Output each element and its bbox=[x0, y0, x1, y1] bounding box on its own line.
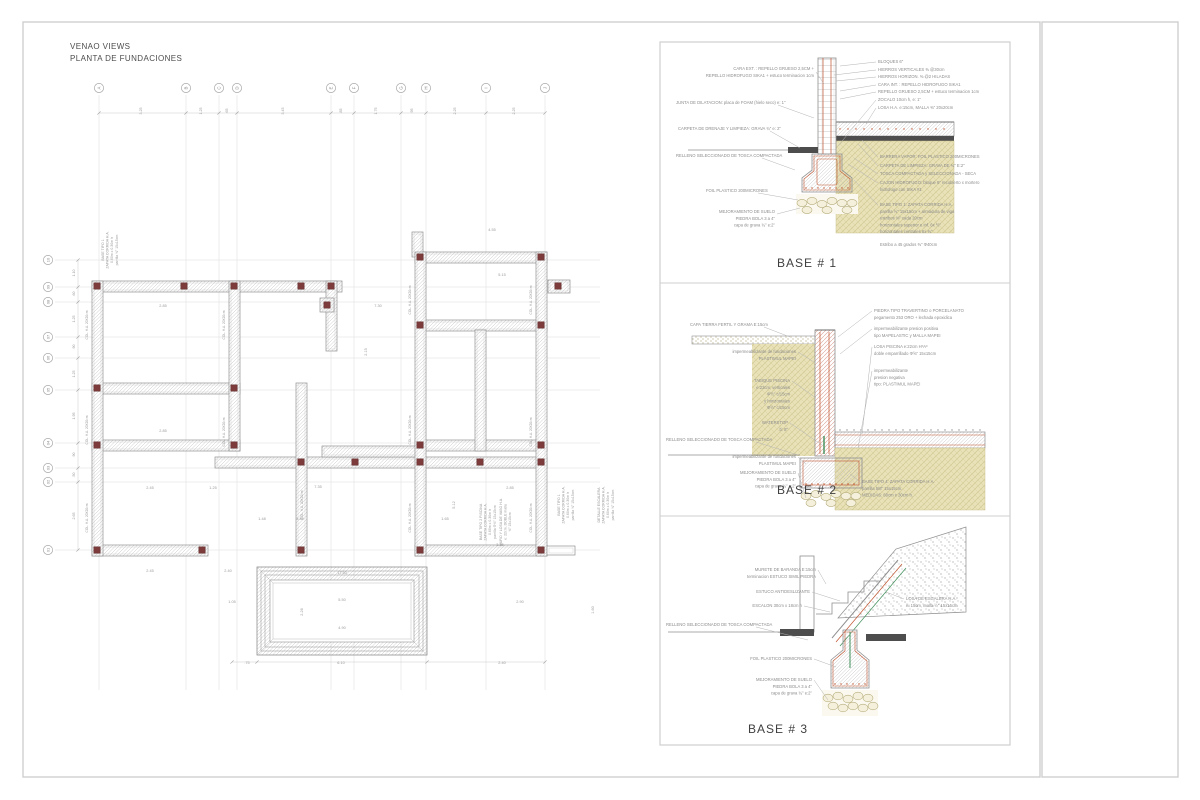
sheet-title-line1: VENAO VIEWS bbox=[70, 41, 182, 53]
axis-label: 02 bbox=[46, 479, 51, 484]
rebar-dot bbox=[916, 429, 917, 430]
plan-annotation: ZAPATA CORRIDA H.A. bbox=[602, 486, 606, 523]
stone bbox=[838, 704, 848, 712]
detail-label: TOSCA COMPACTADA y SELECCIONADA - SECA bbox=[880, 171, 976, 176]
stone bbox=[833, 692, 843, 700]
rebar-dot bbox=[871, 128, 872, 129]
dim-label: 2.15 bbox=[364, 348, 368, 355]
detail-label: ZOCALO 10cm h, e: 1" bbox=[878, 97, 921, 102]
dim-label: 2.85 bbox=[159, 429, 166, 433]
column-label: COL. H.A. 20X20cm bbox=[222, 417, 226, 446]
rebar-dot bbox=[923, 429, 924, 430]
stone bbox=[868, 702, 878, 710]
stone bbox=[837, 199, 847, 206]
stone bbox=[858, 704, 868, 712]
detail-label: LOSA H.A. e:15cm, MALLA ⅜" 20x20cm bbox=[878, 105, 954, 110]
plan-annotation: BASE TIPO 1 bbox=[557, 494, 561, 515]
detail-label: ESCALON 30cm x 18cm h bbox=[752, 603, 802, 608]
rebar-dot bbox=[858, 683, 859, 684]
axis-label: 08 bbox=[46, 299, 51, 304]
rebar-dot bbox=[834, 683, 835, 684]
strip-footing bbox=[92, 440, 240, 451]
plan-annotation: e: 22cm, DOBLE malla bbox=[504, 504, 508, 540]
strip-footing bbox=[92, 545, 208, 556]
detail-title: BASE # 1 bbox=[777, 256, 837, 270]
strip-footing bbox=[415, 545, 547, 556]
drawing-sheet: 3.251.25.653.45.851.75.952.252.251.10.60… bbox=[0, 0, 1200, 800]
dim-label: .65 bbox=[225, 109, 229, 114]
strip-footing bbox=[92, 281, 103, 556]
rebar-dot bbox=[853, 483, 854, 484]
column-label: COL. H.A. 20X20cm bbox=[222, 310, 226, 339]
axis-label: 04 bbox=[46, 440, 51, 445]
rebar-dot bbox=[811, 187, 812, 188]
rebar-dot bbox=[839, 128, 840, 129]
dim-label: 2.26 bbox=[300, 608, 304, 615]
detail-label: FOIL PLASTICO 200MICRONES bbox=[706, 188, 768, 193]
column-marker bbox=[417, 254, 423, 260]
stone bbox=[848, 702, 858, 710]
vapor-barrier bbox=[836, 136, 954, 141]
rebar-dot bbox=[863, 128, 864, 129]
column-marker bbox=[298, 459, 304, 465]
plan-annotation: ZAPATA CORRIDA H.A. bbox=[562, 486, 566, 523]
dim-label: .90 bbox=[72, 345, 76, 350]
stone bbox=[802, 206, 812, 213]
rebar-dot bbox=[881, 429, 882, 430]
rebar-dot bbox=[823, 187, 824, 188]
column-label: COL. H.A. 20X20cm bbox=[408, 415, 412, 444]
stone bbox=[847, 199, 857, 206]
rebar-dot bbox=[895, 128, 896, 129]
axis-label: 03 bbox=[46, 465, 51, 470]
detail-label: Estribo a 45 grados ⅜" Φ40cm bbox=[880, 242, 938, 247]
detail-label: PIEDRA TIPO TRAVERTINO o PORCELANATOpega… bbox=[874, 308, 965, 320]
stone bbox=[828, 702, 838, 710]
rebar-dot bbox=[855, 128, 856, 129]
detail-title: BASE # 3 bbox=[748, 722, 808, 736]
rebar-dot bbox=[867, 429, 868, 430]
detail-label: LOSA PISCINA e:22cm HºAºdoble emparrilla… bbox=[874, 344, 937, 356]
rebar-dot bbox=[909, 429, 910, 430]
axis-label: H bbox=[424, 86, 429, 89]
rebar-dot bbox=[919, 128, 920, 129]
plan-annotation: 0.60m x 0.30m h bbox=[566, 492, 570, 518]
dim-label: 2.90 bbox=[516, 600, 523, 604]
axis-label: I bbox=[484, 87, 489, 88]
detail-label: impermeabilizante presion positivatipo M… bbox=[874, 326, 941, 338]
detail-label: CARPETA DE DRENAJE Y LIMPIEZA: GRAVA ¾" … bbox=[678, 126, 781, 131]
strip-footing bbox=[420, 320, 547, 331]
dim-label: 2.85 bbox=[159, 304, 166, 308]
dim-label: 7.30 bbox=[374, 304, 381, 308]
rebar-dot bbox=[903, 128, 904, 129]
dim-label: 4.55 bbox=[488, 228, 495, 232]
column-marker bbox=[324, 302, 330, 308]
detail-label: RELLENO SELECCIONADO DE TOSCA COMPACTADA bbox=[666, 622, 772, 627]
stone bbox=[843, 695, 853, 703]
rebar-dot bbox=[944, 429, 945, 430]
rebar-dot bbox=[847, 128, 848, 129]
axis-label: G bbox=[399, 86, 404, 90]
sheet-title-line2: PLANTA DE FUNDACIONES bbox=[70, 53, 182, 65]
dim-label: 1.10 bbox=[72, 270, 76, 277]
plan-annotation: ⅝" 15x15cm bbox=[508, 512, 512, 531]
dim-label: 7.35 bbox=[314, 485, 321, 489]
plan-annotation: DETALLE ESCALERA bbox=[597, 487, 601, 523]
dim-label: 1.25 bbox=[209, 486, 216, 490]
strip-footing bbox=[415, 252, 547, 263]
titleblock-column bbox=[1042, 22, 1178, 777]
dim-label: 17.50 bbox=[337, 571, 347, 575]
dim-label: 3.25 bbox=[139, 108, 143, 115]
axis-label: F bbox=[352, 86, 357, 89]
column-marker bbox=[298, 547, 304, 553]
dim-label: 2.25 bbox=[512, 108, 516, 115]
dim-label: 1.60 bbox=[591, 606, 595, 613]
dim-label: 1.65 bbox=[441, 517, 448, 521]
column-marker bbox=[417, 547, 423, 553]
plan-annotation: 0.60m x 0.30m h bbox=[110, 237, 114, 263]
dim-label: 2.85 bbox=[506, 486, 513, 490]
column-marker bbox=[231, 283, 237, 289]
column-label: COL. H.A. 20X20cm bbox=[300, 490, 304, 519]
detail-label: BARRERA VAPOR: FOIL PLASTICO 200MICRONES bbox=[880, 154, 980, 159]
dim-label: 2.45 bbox=[146, 486, 153, 490]
rebar-dot bbox=[895, 429, 896, 430]
column-marker bbox=[555, 283, 561, 289]
dim-label: 1.48 bbox=[258, 517, 265, 521]
column-label: COL. H.A. 20X20cm bbox=[408, 285, 412, 314]
drain-strip bbox=[788, 147, 818, 153]
axis-label: E bbox=[329, 86, 334, 89]
column-label: COL. H.A. 20X20cm bbox=[85, 310, 89, 339]
strip-footing bbox=[92, 383, 240, 394]
column-marker bbox=[231, 442, 237, 448]
column-marker bbox=[94, 385, 100, 391]
detail-label: FOIL PLASTICO 200MICRONES bbox=[750, 656, 812, 661]
pool-wall bbox=[815, 330, 835, 456]
axis-label: 10 bbox=[46, 257, 51, 262]
column-label: COL. H.A. 20X20cm bbox=[529, 503, 533, 532]
sheet-title: VENAO VIEWS PLANTA DE FUNDACIONES bbox=[70, 41, 182, 64]
rebar-dot bbox=[841, 187, 842, 188]
plan-annotation: BASE TIPO 1 bbox=[101, 239, 105, 260]
axis-label: 07 bbox=[46, 334, 51, 339]
dim-label: 2.45 bbox=[146, 569, 153, 573]
strip-footing bbox=[475, 330, 486, 451]
stone bbox=[806, 499, 816, 506]
stone bbox=[807, 197, 817, 204]
detail-label: RELLENO SELECCIONADO DE TOSCA COMPACTADA bbox=[676, 153, 782, 158]
dim-label: .90 bbox=[72, 453, 76, 458]
rebar-dot bbox=[805, 187, 806, 188]
pool-slab bbox=[835, 432, 985, 448]
column-label: COL. H.A. 20X20cm bbox=[85, 503, 89, 532]
plan-annotation: parrilla ⅝" 15x15cm bbox=[571, 490, 575, 521]
strip-footing bbox=[415, 252, 426, 556]
dim-label: 6.10 bbox=[337, 661, 344, 665]
stone bbox=[851, 492, 861, 499]
detail-label: BLOQUES 6" bbox=[878, 59, 904, 64]
rebar-dot bbox=[846, 683, 847, 684]
dim-label: .95 bbox=[410, 109, 414, 114]
strip-footing bbox=[92, 281, 342, 292]
dim-label: 5.50 bbox=[338, 598, 345, 602]
column-marker bbox=[538, 442, 544, 448]
dim-label: .85 bbox=[339, 109, 343, 114]
detail-label: ESTUCO ANTIDESLIZANTE bbox=[756, 589, 810, 594]
column-label: COL. H.A. 20X20cm bbox=[529, 417, 533, 446]
rebar-dot bbox=[874, 429, 875, 430]
detail-label: LOSA DE ESCALERA H.A.e: 15cm, malla ½" 1… bbox=[906, 596, 958, 608]
rebar-dot bbox=[935, 128, 936, 129]
column-marker bbox=[298, 283, 304, 289]
rebar-dot bbox=[979, 429, 980, 430]
detail-label: REPELLO GRUESO 2,5CM + estuco terminacio… bbox=[878, 89, 980, 94]
column-marker bbox=[94, 283, 100, 289]
column-label: COL. H.A. 20X20cm bbox=[85, 415, 89, 444]
block-wall bbox=[818, 58, 836, 154]
stone bbox=[853, 692, 863, 700]
rebar-dot bbox=[958, 429, 959, 430]
strip-footing bbox=[215, 457, 547, 468]
rebar-dot bbox=[829, 187, 830, 188]
rebar-dot bbox=[927, 128, 928, 129]
compacted-strip bbox=[780, 629, 814, 636]
detail-label: CARPETA DE LIMPIEZA: GRAVA DE ¾" E:2" bbox=[880, 163, 965, 168]
rebar-dot bbox=[817, 187, 818, 188]
strip-footing bbox=[322, 446, 417, 457]
column-marker bbox=[181, 283, 187, 289]
column-marker bbox=[94, 547, 100, 553]
plan-annotation: ZAPATA CORRIDA H.A. bbox=[484, 503, 488, 540]
axis-label: J bbox=[543, 87, 548, 89]
stone bbox=[797, 199, 807, 206]
axis-label: A bbox=[97, 86, 102, 89]
rebar-dot bbox=[965, 429, 966, 430]
column-marker bbox=[538, 322, 544, 328]
strip-footing bbox=[229, 281, 240, 451]
axis-label: D bbox=[235, 86, 240, 89]
stone bbox=[841, 492, 851, 499]
stone bbox=[863, 694, 873, 702]
stone bbox=[846, 499, 856, 506]
column-label: COL. H.A. 20X20cm bbox=[408, 503, 412, 532]
rebar-dot bbox=[911, 128, 912, 129]
dim-label: 1.05 bbox=[228, 600, 235, 604]
dim-label: 1.25 bbox=[72, 371, 76, 378]
column-marker bbox=[94, 442, 100, 448]
dim-label: 2.40 bbox=[498, 661, 505, 665]
rebar-dot bbox=[972, 429, 973, 430]
rebar-dot bbox=[835, 187, 836, 188]
stone bbox=[822, 206, 832, 213]
detail-label: MURETE DE BARANDA E:15cmterminacion ESTU… bbox=[747, 567, 816, 579]
axis-label: 01 bbox=[46, 547, 51, 552]
plan-annotation: 0.60m x 0.30m h bbox=[606, 492, 610, 518]
rebar-dot bbox=[841, 483, 842, 484]
plan-annotation: parrilla ⅝" 15x15cm bbox=[611, 490, 615, 521]
dim-label: 5.15 bbox=[498, 273, 505, 277]
column-marker bbox=[352, 459, 358, 465]
column-marker bbox=[231, 385, 237, 391]
detail-label: CAPA TIERRA FERTIL Y GRAMA E:15cm bbox=[690, 322, 768, 327]
column-marker bbox=[538, 547, 544, 553]
detail-label: HIERROS HORIZON. ⅜ @2 HILADAS bbox=[878, 74, 950, 79]
axis-label: 05 bbox=[46, 387, 51, 392]
rebar-dot bbox=[864, 683, 865, 684]
strip-footing bbox=[536, 252, 547, 556]
stair-stub bbox=[547, 546, 575, 555]
plan-annotation: MURO Y LOSA DE VASO H.A. bbox=[499, 498, 503, 546]
detail-title: BASE # 2 bbox=[777, 483, 837, 497]
dim-label: .60 bbox=[72, 292, 76, 297]
rebar-dot bbox=[853, 429, 854, 430]
rebar-dot bbox=[846, 429, 847, 430]
rebar-dot bbox=[847, 187, 848, 188]
column-marker bbox=[328, 283, 334, 289]
plan-annotation: ZAPATA CORRIDA H.A. bbox=[106, 231, 110, 268]
dim-label: .75 bbox=[244, 661, 249, 665]
rebar-dot bbox=[937, 429, 938, 430]
detail-label: JUNTA DE DILATACION: placa de FOAM (hiel… bbox=[676, 100, 786, 105]
dim-label: 5.12 bbox=[452, 501, 456, 508]
rebar-dot bbox=[888, 429, 889, 430]
dim-label: 1.95 bbox=[72, 413, 76, 420]
rebar-dot bbox=[839, 429, 840, 430]
axis-label: 09 bbox=[46, 284, 51, 289]
dim-label: 1.25 bbox=[199, 108, 203, 115]
dim-label: 3.45 bbox=[281, 108, 285, 115]
dim-label: 4.90 bbox=[338, 626, 345, 630]
pool-inner bbox=[273, 583, 411, 639]
rebar-dot bbox=[930, 429, 931, 430]
rebar-dot bbox=[879, 128, 880, 129]
axis-label: 06 bbox=[46, 355, 51, 360]
stone bbox=[826, 499, 836, 506]
dim-label: 1.25 bbox=[72, 316, 76, 323]
dim-label: .50 bbox=[72, 473, 76, 478]
axis-label: C bbox=[217, 86, 222, 89]
column-marker bbox=[199, 547, 205, 553]
stone bbox=[827, 197, 837, 204]
column-marker bbox=[538, 254, 544, 260]
rebar-dot bbox=[902, 429, 903, 430]
strip-footing bbox=[326, 281, 337, 351]
plan-group: 3.251.25.653.45.851.75.952.252.251.10.60… bbox=[43, 83, 614, 690]
compacted-strip bbox=[866, 634, 906, 641]
foundation-plan-svg: 3.251.25.653.45.851.75.952.252.251.10.60… bbox=[0, 0, 1200, 800]
detail-label: HIERROS VERTICALES ⅜ @30cm bbox=[878, 67, 945, 72]
column-label: COL. H.A. 20X20cm bbox=[529, 285, 533, 314]
rebar-dot bbox=[852, 683, 853, 684]
column-marker bbox=[417, 322, 423, 328]
column-marker bbox=[538, 459, 544, 465]
rebar-dot bbox=[943, 128, 944, 129]
dim-label: 2.40 bbox=[224, 569, 231, 573]
dim-label: 1.75 bbox=[374, 108, 378, 115]
rebar-dot bbox=[887, 128, 888, 129]
plan-annotation: BASE TIPO 2 PISCINA bbox=[479, 503, 483, 540]
column-marker bbox=[417, 459, 423, 465]
detail-label: RELLENO SELECCIONADO DE TOSCA COMPACTADA bbox=[666, 437, 772, 442]
rebar-dot bbox=[847, 483, 848, 484]
dim-label: 2.25 bbox=[453, 108, 457, 115]
column-marker bbox=[477, 459, 483, 465]
plan-annotation: parrilla ⅝" 15x15cm bbox=[115, 235, 119, 266]
plan-annotation: parrilla Φ⅝" 15x15cm bbox=[493, 505, 497, 539]
strip-footing bbox=[296, 383, 307, 556]
plan-annotation: 0.60m x 0.30m h bbox=[488, 509, 492, 535]
dim-label: 2.65 bbox=[72, 513, 76, 520]
axis-label: B bbox=[184, 86, 189, 89]
rebar-dot bbox=[951, 429, 952, 430]
column-marker bbox=[417, 442, 423, 448]
topsoil-band bbox=[692, 336, 815, 344]
details-group: CARA EXT. : REPELLO GRUESO 2,5CM +REPELL… bbox=[660, 42, 1010, 745]
stone bbox=[842, 206, 852, 213]
rebar-dot bbox=[840, 683, 841, 684]
detail-label: CARA INT. : REPELLO HIDROFUGO SIKA1 bbox=[878, 82, 961, 87]
